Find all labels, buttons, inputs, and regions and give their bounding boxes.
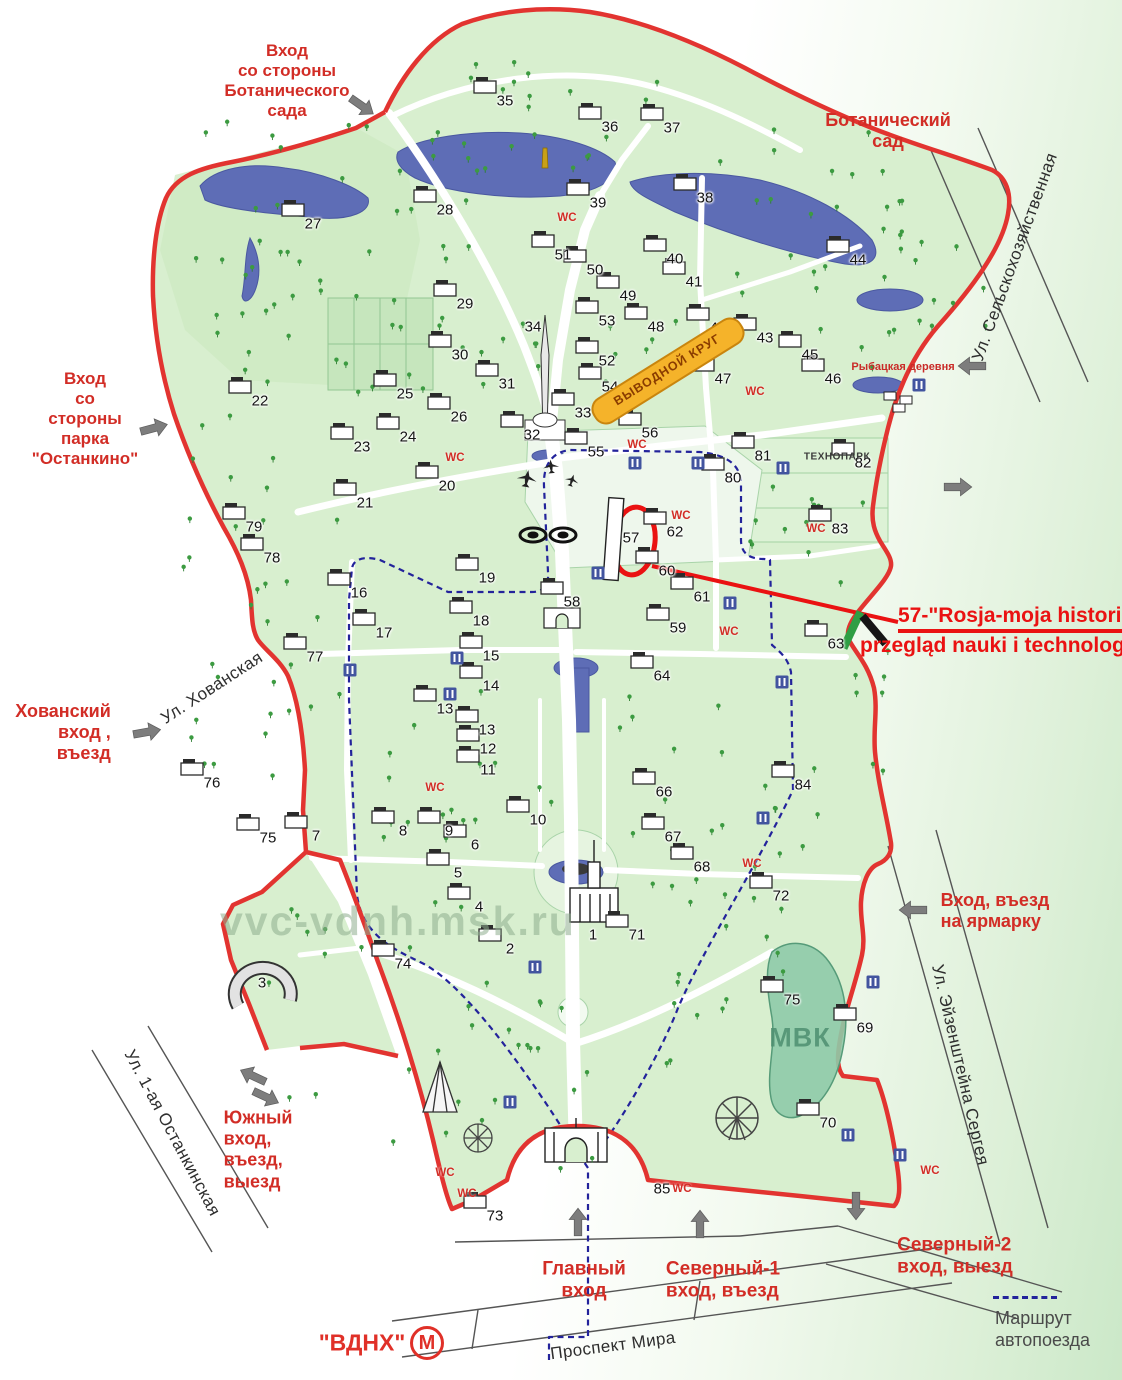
map-number-label: 52 bbox=[599, 353, 616, 370]
map-number-label: 21 bbox=[357, 495, 374, 512]
map-number-label: 48 bbox=[648, 319, 665, 336]
map-number-label: 57 bbox=[623, 530, 640, 547]
technopark-label: ТЕХНОПАРК bbox=[804, 452, 870, 463]
wc-label: WC bbox=[806, 523, 825, 535]
map-number-label: 14 bbox=[483, 678, 500, 695]
map-number-label: 80 bbox=[725, 470, 742, 487]
map-number-label: 67 bbox=[665, 829, 682, 846]
wc-label: WC bbox=[920, 1165, 939, 1177]
annotation-line-2: przegląd nauki i technologii bbox=[860, 634, 1122, 658]
map-number-label: 68 bbox=[694, 859, 711, 876]
vdnh-park-map: Входсо стороныБотаническогосадаБотаничес… bbox=[0, 0, 1122, 1380]
map-number-label: 16 bbox=[351, 585, 368, 602]
entrance-label-botanical-garden: Ботаническийсад bbox=[825, 110, 951, 152]
map-number-label: 72 bbox=[773, 888, 790, 905]
map-number-label: 47 bbox=[715, 371, 732, 388]
map-number-label: 66 bbox=[656, 784, 673, 801]
map-number-label: 70 bbox=[820, 1115, 837, 1132]
entrance-label-north2-entrance: Северный-2вход, выезд bbox=[897, 1235, 1013, 1280]
map-number-label: 75 bbox=[784, 992, 801, 1009]
map-number-label: 13 bbox=[479, 722, 496, 739]
map-number-label: 36 bbox=[602, 119, 619, 136]
wc-label: WC bbox=[557, 212, 576, 224]
map-number-label: 45 bbox=[802, 347, 819, 364]
route-legend-label-2: автопоезда bbox=[995, 1330, 1090, 1352]
map-number-label: 18 bbox=[473, 613, 490, 630]
fishing-village-label: Рыбацкая деревня bbox=[851, 361, 954, 373]
map-number-label: 77 bbox=[307, 649, 324, 666]
street-label-1: Ул. Хованская bbox=[157, 648, 266, 729]
map-number-label: 75 bbox=[260, 830, 277, 847]
map-number-label: 61 bbox=[694, 589, 711, 606]
map-number-label: 12 bbox=[480, 741, 497, 758]
map-number-label: 19 bbox=[479, 570, 496, 587]
route-legend-label-1: Маршрут bbox=[995, 1308, 1072, 1330]
map-number-label: 39 bbox=[590, 195, 607, 212]
map-number-label: 13 bbox=[437, 701, 454, 718]
entrance-label-ostankino-entrance: Входсостороныпарка"Останкино" bbox=[32, 369, 138, 469]
map-number-label: 64 bbox=[654, 668, 671, 685]
map-number-label: 53 bbox=[599, 313, 616, 330]
map-number-label: 28 bbox=[437, 202, 454, 219]
annotation-line-1: 57-"Rosja-moja historia" bbox=[898, 604, 1122, 633]
watermark: vvc-vdnh.msk.ru bbox=[220, 898, 576, 945]
wc-label: WC bbox=[745, 386, 764, 398]
map-number-label: 62 bbox=[667, 524, 684, 541]
wc-label: WC bbox=[457, 1188, 476, 1200]
map-number-label: 49 bbox=[620, 288, 637, 305]
mvk-label: МВК bbox=[769, 1023, 830, 1054]
map-number-label: 26 bbox=[451, 409, 468, 426]
map-number-label: 7 bbox=[312, 828, 320, 845]
map-number-label: 76 bbox=[204, 775, 221, 792]
map-number-label: 55 bbox=[588, 444, 605, 461]
map-number-label: 25 bbox=[397, 386, 414, 403]
map-number-label: 71 bbox=[629, 927, 646, 944]
metro-icon: М bbox=[410, 1326, 444, 1360]
map-number-label: 29 bbox=[457, 296, 474, 313]
map-number-label: 6 bbox=[471, 837, 479, 854]
street-label-4: Проспект Мира bbox=[549, 1328, 677, 1364]
entrance-label-fair-entrance: Вход, въездна ярмарку bbox=[941, 890, 1050, 932]
wc-label: WC bbox=[671, 510, 690, 522]
wc-label: WC bbox=[672, 1183, 691, 1195]
map-number-label: 81 bbox=[755, 448, 772, 465]
map-number-label: 15 bbox=[483, 648, 500, 665]
map-number-label: 79 bbox=[246, 519, 263, 536]
entrance-label-botanical-entrance: Входсо стороныБотаническогосада bbox=[224, 41, 349, 121]
wc-label: WC bbox=[445, 452, 464, 464]
street-label-2: Ул. Эйзенштейна Сергея bbox=[927, 963, 993, 1168]
map-number-label: 9 bbox=[445, 823, 453, 840]
map-number-label: 41 bbox=[686, 274, 703, 291]
map-number-label: 78 bbox=[264, 550, 281, 567]
map-number-label: 84 bbox=[795, 777, 812, 794]
entrance-label-main-entrance: Главныйвход bbox=[542, 1259, 626, 1304]
map-number-label: 85 bbox=[654, 1181, 671, 1198]
metro-station-label: "ВДНХ" bbox=[319, 1330, 405, 1357]
map-number-label: 59 bbox=[670, 620, 687, 637]
street-label-3: Ул. 1-ая Останкинская bbox=[120, 1046, 225, 1219]
map-number-label: 50 bbox=[587, 262, 604, 279]
map-number-label: 17 bbox=[376, 625, 393, 642]
map-number-label: 34 bbox=[525, 319, 542, 336]
entrance-label-khovansky-entrance: Хованскийвход ,въезд bbox=[15, 701, 111, 765]
map-number-label: 38 bbox=[697, 190, 714, 207]
map-number-label: 30 bbox=[452, 347, 469, 364]
wc-label: WC bbox=[435, 1167, 454, 1179]
map-number-label: 63 bbox=[828, 636, 845, 653]
map-number-label: 33 bbox=[575, 405, 592, 422]
wc-label: WC bbox=[742, 858, 761, 870]
map-number-label: 43 bbox=[757, 330, 774, 347]
map-number-label: 24 bbox=[400, 429, 417, 446]
map-number-label: 37 bbox=[664, 120, 681, 137]
map-number-label: 44 bbox=[850, 252, 867, 269]
map-number-label: 8 bbox=[399, 823, 407, 840]
street-label-0: Ул. Сельскохозяйственная bbox=[968, 150, 1062, 364]
map-number-label: 32 bbox=[524, 427, 541, 444]
map-number-label: 22 bbox=[252, 393, 269, 410]
route-legend-line bbox=[993, 1296, 1057, 1299]
map-number-label: 27 bbox=[305, 216, 322, 233]
map-number-label: 83 bbox=[832, 521, 849, 538]
map-number-label: 40 bbox=[667, 251, 684, 268]
map-number-label: 58 bbox=[564, 594, 581, 611]
map-number-label: 31 bbox=[499, 376, 516, 393]
map-number-label: 11 bbox=[480, 762, 496, 779]
entrance-label-north1-entrance: Северный-1вход, въезд bbox=[666, 1259, 780, 1304]
map-number-label: 73 bbox=[487, 1208, 504, 1225]
map-number-label: 51 bbox=[555, 247, 572, 264]
wc-label: WC bbox=[719, 626, 738, 638]
map-number-label: 46 bbox=[825, 371, 842, 388]
map-number-label: 3 bbox=[258, 975, 266, 992]
wc-label: WC bbox=[627, 439, 646, 451]
wc-label: WC bbox=[425, 782, 444, 794]
map-number-label: 1 bbox=[589, 927, 597, 944]
map-number-label: 69 bbox=[857, 1020, 874, 1037]
map-number-label: 20 bbox=[439, 478, 456, 495]
map-number-label: 74 bbox=[395, 956, 412, 973]
map-labels-layer: Входсо стороныБотаническогосадаБотаничес… bbox=[0, 0, 1122, 1380]
map-number-label: 60 bbox=[659, 563, 676, 580]
entrance-label-south-entrance: Южныйвход,въезд,выезд bbox=[224, 1108, 293, 1193]
map-number-label: 10 bbox=[530, 812, 547, 829]
map-number-label: 5 bbox=[454, 865, 462, 882]
map-number-label: 35 bbox=[497, 93, 514, 110]
map-number-label: 23 bbox=[354, 439, 371, 456]
